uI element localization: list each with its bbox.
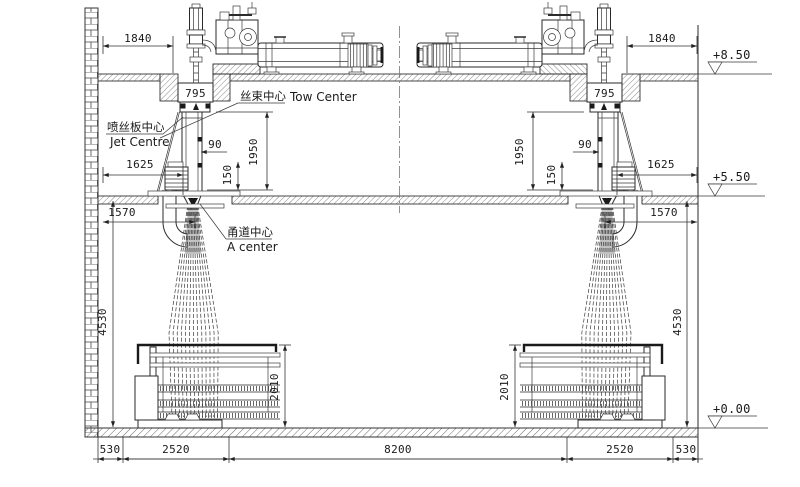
dim-1625-right: 1625 <box>647 158 675 171</box>
jet-center-en: Jet Centre <box>109 135 170 149</box>
dim-4530-right: 4530 <box>671 308 684 336</box>
tow-center-en: Tow Center <box>289 90 357 104</box>
dim-150-right: 150 <box>545 165 558 186</box>
elevation-marker-mezzanine: +5.50 <box>708 170 757 196</box>
a-center-label: 甬道中心 A center <box>200 204 278 254</box>
takeup-machine <box>135 345 280 428</box>
dim-90-left: 90 <box>208 138 222 151</box>
dim-1570-left: 1570 <box>108 206 136 219</box>
a-center-cn: 甬道中心 <box>227 225 273 239</box>
dim-2520-left: 2520 <box>162 443 190 456</box>
jet-center-cn: 喷丝板中心 <box>107 120 165 134</box>
dim-2010-right: 2010 <box>498 373 511 401</box>
elevation-ground-value: +0.00 <box>713 402 751 416</box>
a-center-en: A center <box>227 240 278 254</box>
elevation-marker-ground: +0.00 <box>708 402 757 428</box>
dim-1840-right: 1840 <box>648 32 676 45</box>
dim-1950-right: 1950 <box>513 138 526 166</box>
dim-8200: 8200 <box>384 443 412 456</box>
dim-90-right: 90 <box>578 138 592 151</box>
dim-1570-right: 1570 <box>650 206 678 219</box>
elevation-roof-value: +8.50 <box>713 48 751 62</box>
dim-2520-right: 2520 <box>606 443 634 456</box>
dim-2010-left: 2010 <box>268 373 281 401</box>
dim-530-right: 530 <box>676 443 697 456</box>
tow-center-cn: 丝束中心 <box>240 89 286 103</box>
spinning-plant-section-drawing: +8.50 +5.50 +0.00 丝束中心 Tow Center 喷丝板中心 … <box>0 0 800 487</box>
spinning-machinery <box>187 2 383 83</box>
dim-795-left: 795 <box>185 87 206 100</box>
dim-530-left: 530 <box>100 443 121 456</box>
left-half-assembly <box>103 2 383 428</box>
left-wall <box>85 8 98 437</box>
dim-1625-left: 1625 <box>126 158 154 171</box>
dim-4530-left: 4530 <box>96 308 109 336</box>
dim-1840-left: 1840 <box>124 32 152 45</box>
elevation-marker-roof: +8.50 <box>708 48 757 74</box>
generated-lines <box>194 52 199 80</box>
dim-795-right: 795 <box>594 87 615 100</box>
pump-pipe <box>194 48 199 83</box>
drawing-canvas: +8.50 +5.50 +0.00 丝束中心 Tow Center 喷丝板中心 … <box>0 0 800 487</box>
dim-150-left: 150 <box>221 165 234 186</box>
elevation-markers: +8.50 +5.50 +0.00 <box>708 48 757 428</box>
elevation-mezzanine-value: +5.50 <box>713 170 751 184</box>
dim-1950-left: 1950 <box>247 138 260 166</box>
ground-floor-slab <box>85 428 698 437</box>
